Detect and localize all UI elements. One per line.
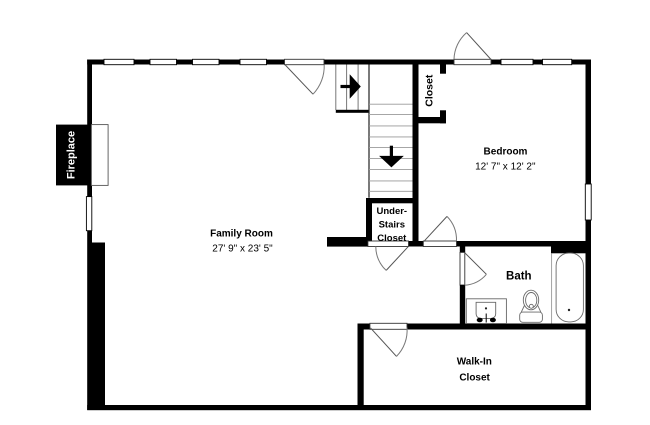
svg-text:Closet: Closet (459, 372, 490, 383)
svg-text:Fireplace: Fireplace (66, 131, 78, 179)
svg-text:27' 9" x 23' 5": 27' 9" x 23' 5" (212, 244, 273, 255)
svg-text:Closet: Closet (424, 74, 436, 107)
svg-text:Under-: Under- (376, 206, 407, 217)
svg-text:Walk-In: Walk-In (457, 357, 492, 368)
svg-text:Stairs: Stairs (379, 220, 405, 231)
svg-text:Closet: Closet (377, 233, 407, 244)
svg-text:12' 7" x 12' 2": 12' 7" x 12' 2" (475, 162, 536, 173)
svg-text:Bedroom: Bedroom (484, 147, 528, 158)
svg-text:Bath: Bath (506, 271, 532, 283)
svg-text:Family Room: Family Room (210, 229, 273, 240)
